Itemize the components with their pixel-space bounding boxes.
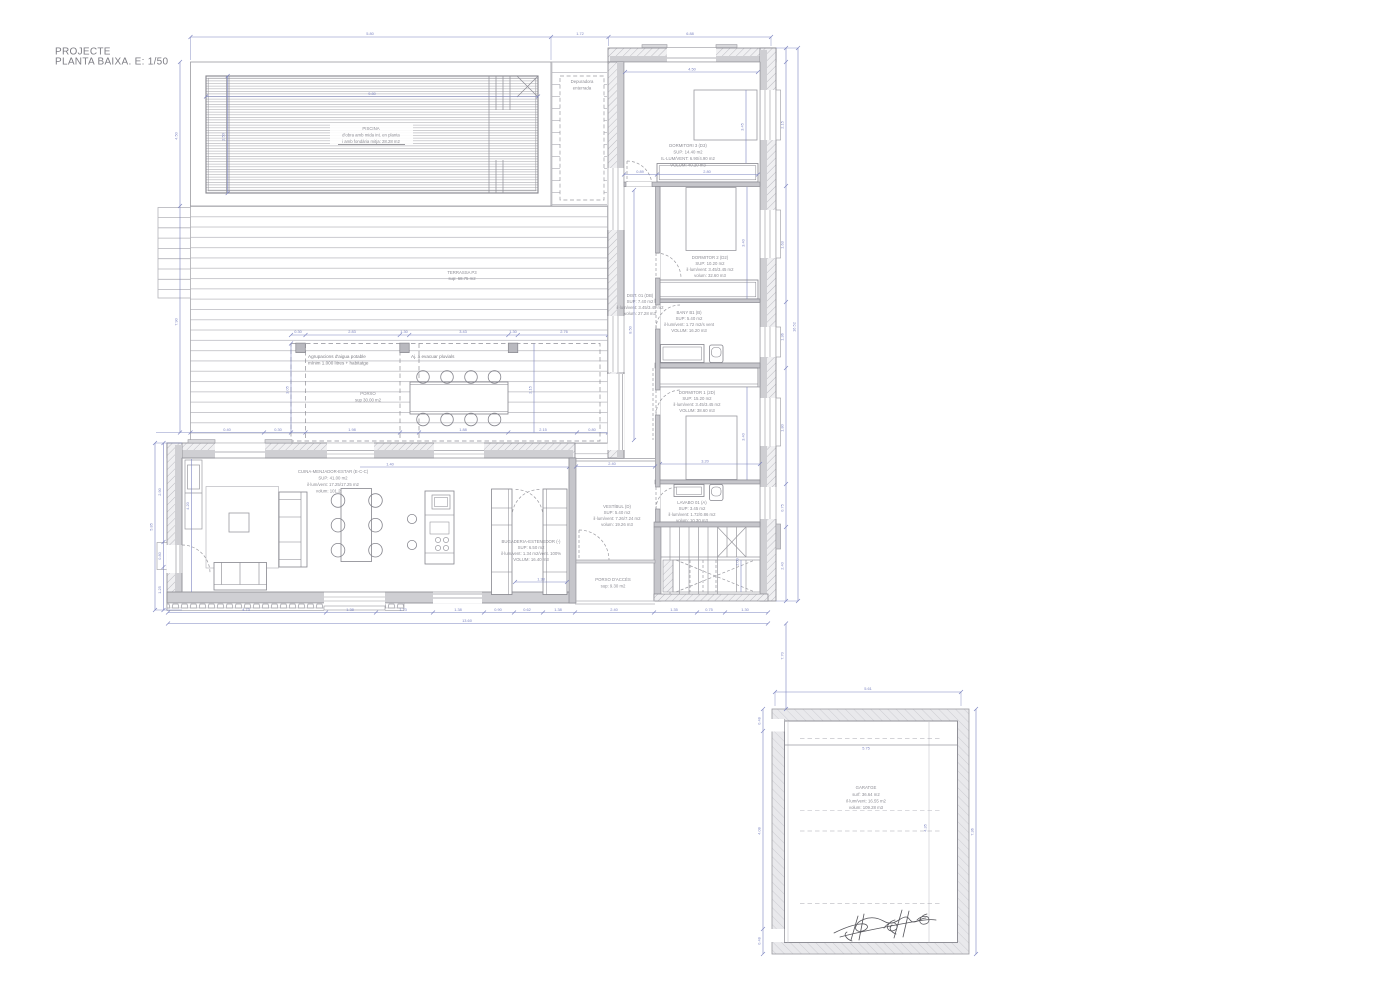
svg-text:1.88: 1.88 xyxy=(459,427,467,432)
svg-text:volum: 19.26 m3: volum: 19.26 m3 xyxy=(601,522,633,527)
svg-text:3.40: 3.40 xyxy=(741,432,746,440)
svg-text:2.15: 2.15 xyxy=(780,121,785,129)
svg-text:VOLUM: 16.20 m3: VOLUM: 16.20 m3 xyxy=(671,328,707,333)
svg-text:BANY B1 (B): BANY B1 (B) xyxy=(677,310,703,315)
svg-text:13.60: 13.60 xyxy=(462,618,473,623)
svg-text:4.73: 4.73 xyxy=(242,607,250,612)
svg-text:1.63: 1.63 xyxy=(780,241,785,249)
svg-text:7.36: 7.36 xyxy=(970,828,975,836)
svg-text:VOLUM: 40.20 m3: VOLUM: 40.20 m3 xyxy=(670,163,706,168)
svg-text:PLANTA BAIXA. E: 1/50: PLANTA BAIXA. E: 1/50 xyxy=(55,57,169,68)
svg-text:5.75: 5.75 xyxy=(862,746,870,751)
svg-text:mínim 1.000 litres + habitatge: mínim 1.000 litres + habitatge xyxy=(308,361,369,366)
svg-text:4.08: 4.08 xyxy=(757,827,762,835)
svg-text:0.75: 0.75 xyxy=(705,607,713,612)
svg-text:Depuradora: Depuradora xyxy=(571,79,594,84)
svg-text:6.88: 6.88 xyxy=(686,31,694,36)
svg-text:1.38: 1.38 xyxy=(554,607,562,612)
svg-text:sup: 68.75 m2: sup: 68.75 m2 xyxy=(448,276,476,281)
svg-text:16.52: 16.52 xyxy=(792,322,797,332)
svg-text:2.40: 2.40 xyxy=(608,461,616,466)
svg-text:SUP: 5.40 m2: SUP: 5.40 m2 xyxy=(676,316,703,321)
svg-text:9.80: 9.80 xyxy=(368,91,376,96)
svg-text:1.30: 1.30 xyxy=(509,329,517,334)
svg-text:4.35: 4.35 xyxy=(923,824,928,832)
svg-text:GARATGE: GARATGE xyxy=(856,785,877,790)
svg-text:sup: 9.30 m2: sup: 9.30 m2 xyxy=(601,584,626,589)
svg-text:0.48: 0.48 xyxy=(757,937,762,945)
svg-text:il·lum/vent: 3.45/3.45 m2: il·lum/vent: 3.45/3.45 m2 xyxy=(686,267,734,272)
svg-text:2.80: 2.80 xyxy=(703,169,711,174)
svg-text:0.40: 0.40 xyxy=(223,427,231,432)
svg-text:1.98: 1.98 xyxy=(348,427,356,432)
svg-text:2.40: 2.40 xyxy=(780,561,785,569)
svg-text:4.50: 4.50 xyxy=(688,67,696,72)
svg-text:0.75: 0.75 xyxy=(780,504,785,512)
svg-text:1.25: 1.25 xyxy=(157,586,162,594)
svg-text:0.89: 0.89 xyxy=(636,169,644,174)
svg-text:3.05: 3.05 xyxy=(285,386,290,394)
svg-text:il·lum/vent: 1.72/0.86 m2: il·lum/vent: 1.72/0.86 m2 xyxy=(668,512,716,517)
svg-text:0.90: 0.90 xyxy=(494,607,502,612)
svg-text:3.43: 3.43 xyxy=(459,329,467,334)
svg-text:DORMITORI 3 (D3): DORMITORI 3 (D3) xyxy=(669,143,707,148)
svg-text:surf: 36.64 m2: surf: 36.64 m2 xyxy=(852,792,880,797)
svg-text:il·lum/vent: 3.45/3.45 m2: il·lum/vent: 3.45/3.45 m2 xyxy=(616,305,664,310)
svg-text:1.38: 1.38 xyxy=(346,607,354,612)
svg-text:CUINA-MENJADOR-ESTAR (E-C-C): CUINA-MENJADOR-ESTAR (E-C-C) xyxy=(298,469,369,474)
svg-text:enterrada: enterrada xyxy=(573,86,592,91)
svg-text:4.20: 4.20 xyxy=(185,501,190,509)
svg-text:4.50: 4.50 xyxy=(174,131,179,139)
svg-text:SUP: 5.40 m2: SUP: 5.40 m2 xyxy=(604,510,631,515)
svg-text:0.30: 0.30 xyxy=(274,427,282,432)
svg-text:VOLUM: 38.60 m3: VOLUM: 38.60 m3 xyxy=(679,408,715,413)
svg-text:7.90: 7.90 xyxy=(174,317,179,325)
svg-text:volum: 32.60 m3: volum: 32.60 m3 xyxy=(694,273,726,278)
svg-text:2.50: 2.50 xyxy=(221,132,226,140)
svg-text:2.90: 2.90 xyxy=(157,487,162,495)
svg-text:il·lum/vent: 1.72 m2/s vent: il·lum/vent: 1.72 m2/s vent xyxy=(664,322,715,327)
svg-text:SUP: 7.40 m2: SUP: 7.40 m2 xyxy=(627,299,654,304)
svg-text:0.80: 0.80 xyxy=(588,427,596,432)
svg-text:volum: 109.28 m3: volum: 109.28 m3 xyxy=(849,805,884,810)
svg-text:SUP: 15.20 m2: SUP: 15.20 m2 xyxy=(682,396,712,401)
svg-text:il·lum/vent: 1.34 m2/vent. 100: il·lum/vent: 1.34 m2/vent. 100% xyxy=(501,551,561,556)
svg-text:0.30: 0.30 xyxy=(294,329,302,334)
svg-text:0.80: 0.80 xyxy=(157,551,162,559)
svg-text:2.15: 2.15 xyxy=(528,386,533,394)
svg-text:2.83: 2.83 xyxy=(348,329,356,334)
svg-text:1.36: 1.36 xyxy=(780,333,785,341)
svg-text:SUP: 10.20 m2: SUP: 10.20 m2 xyxy=(695,261,725,266)
svg-text:SUP: 14.40 m2: SUP: 14.40 m2 xyxy=(673,150,703,155)
svg-text:IL·LUM/VENT: 6.90/4.90 m2: IL·LUM/VENT: 6.90/4.90 m2 xyxy=(661,156,715,161)
svg-text:1.38: 1.38 xyxy=(537,577,545,582)
svg-text:PORXO: PORXO xyxy=(360,391,376,396)
svg-text:BUGADERIA-ESTENEDOR (-): BUGADERIA-ESTENEDOR (-) xyxy=(502,539,562,544)
svg-text:sup 30.00 m2: sup 30.00 m2 xyxy=(355,398,382,403)
svg-text:0.48: 0.48 xyxy=(757,717,762,725)
svg-text:3.45: 3.45 xyxy=(740,123,745,131)
svg-text:5.61: 5.61 xyxy=(864,686,872,691)
svg-text:3.40: 3.40 xyxy=(741,238,746,246)
svg-text:1.38: 1.38 xyxy=(454,607,462,612)
svg-text:il·lum/vent: 17.25/17.25 m2: il·lum/vent: 17.25/17.25 m2 xyxy=(307,482,359,487)
svg-text:2.40: 2.40 xyxy=(610,607,618,612)
svg-text:PISCINA: PISCINA xyxy=(362,126,379,131)
svg-text:0.62: 0.62 xyxy=(523,607,531,612)
svg-text:LAVABO 01 (A): LAVABO 01 (A) xyxy=(677,500,707,505)
svg-text:5.80: 5.80 xyxy=(366,31,374,36)
svg-text:1.30: 1.30 xyxy=(741,607,749,612)
svg-text:DORMITOR 2 (D2): DORMITOR 2 (D2) xyxy=(692,255,729,260)
svg-text:2.00: 2.00 xyxy=(735,557,740,565)
svg-text:Agrupacions d'aigua potable: Agrupacions d'aigua potable xyxy=(308,354,366,359)
svg-text:il·lum/vent: 3.45/3.45 m2: il·lum/vent: 3.45/3.45 m2 xyxy=(673,402,721,407)
svg-text:Aj. a evacuar pluvials: Aj. a evacuar pluvials xyxy=(411,354,455,359)
svg-text:2.15: 2.15 xyxy=(539,427,547,432)
svg-text:SUP: 3.45 m2: SUP: 3.45 m2 xyxy=(679,506,706,511)
svg-text:i amb fondària mitja: 28.28 m2: i amb fondària mitja: 28.28 m2 xyxy=(342,139,400,144)
svg-text:1.40: 1.40 xyxy=(386,462,394,467)
svg-text:1.80: 1.80 xyxy=(780,423,785,431)
svg-text:1.72: 1.72 xyxy=(576,31,584,36)
svg-text:7.70: 7.70 xyxy=(780,651,785,659)
svg-text:VESTÍBUL (D): VESTÍBUL (D) xyxy=(603,504,631,509)
svg-text:d'obra amb mida int. en planta: d'obra amb mida int. en planta xyxy=(342,133,400,138)
svg-text:8.50: 8.50 xyxy=(628,325,633,333)
svg-text:il·lum/vent: 7.26/7.24 m2: il·lum/vent: 7.26/7.24 m2 xyxy=(593,516,641,521)
svg-text:TERRASSA P3: TERRASSA P3 xyxy=(447,270,477,275)
svg-text:1.35: 1.35 xyxy=(670,607,678,612)
svg-text:volum: 27.28 m3: volum: 27.28 m3 xyxy=(624,311,656,316)
svg-text:SUP: 6.50 m2: SUP: 6.50 m2 xyxy=(518,545,545,550)
svg-text:il·lum/vent: 16.55 m2: il·lum/vent: 16.55 m2 xyxy=(846,799,886,804)
svg-text:DIST. 01 (DB): DIST. 01 (DB) xyxy=(627,293,654,298)
svg-text:1.73: 1.73 xyxy=(399,607,407,612)
svg-text:3.20: 3.20 xyxy=(701,459,709,464)
svg-text:2.76: 2.76 xyxy=(560,329,568,334)
svg-text:1.30: 1.30 xyxy=(400,329,408,334)
svg-text:SUP: 41.00 m2: SUP: 41.00 m2 xyxy=(318,476,348,481)
svg-text:PORXO D'ACCÉS: PORXO D'ACCÉS xyxy=(595,577,631,582)
svg-text:5.85: 5.85 xyxy=(149,523,154,531)
svg-text:VOLUM: 16.40 m3: VOLUM: 16.40 m3 xyxy=(513,557,549,562)
svg-text:DORMITOR 1 (2D): DORMITOR 1 (2D) xyxy=(679,390,716,395)
